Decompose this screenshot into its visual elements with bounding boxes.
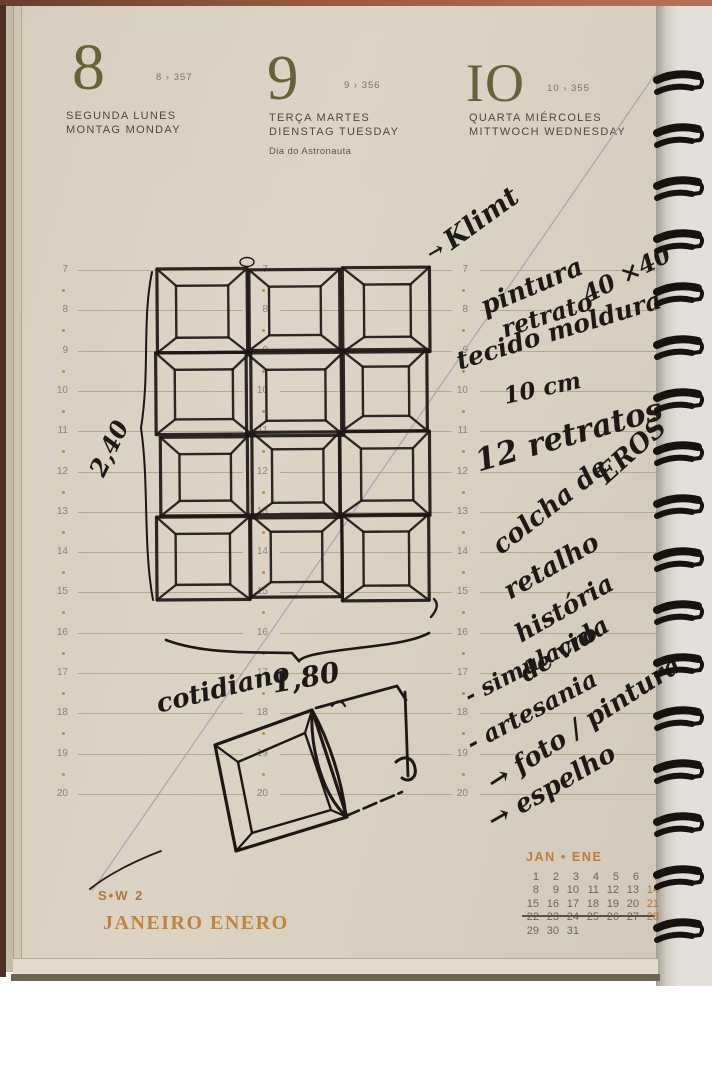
day-info-10: 10 › 355	[547, 83, 590, 94]
hour-line	[280, 754, 452, 755]
half-hour-dot	[462, 652, 465, 655]
hour-number: 14	[46, 546, 68, 557]
mini-calendar-grid: 1234567891011121314151617181920212223242…	[522, 869, 662, 936]
hour-line	[78, 794, 243, 795]
hour-number: 10	[246, 385, 268, 396]
hour-line	[78, 512, 243, 513]
hour-number: 7	[446, 264, 468, 275]
calendar-day: 30	[542, 925, 562, 938]
hour-number: 16	[246, 627, 268, 638]
calendar-row: 15161718192021	[522, 896, 662, 909]
page-stack-edge-left-2	[14, 6, 22, 964]
book-bottom-edge	[11, 974, 660, 981]
hour-number: 19	[446, 748, 468, 759]
hour-line	[78, 351, 243, 352]
calendar-row: 1234567	[522, 869, 662, 882]
hour-number: 9	[46, 345, 68, 356]
page-stack-edge-bottom	[13, 958, 658, 975]
half-hour-dot	[62, 289, 65, 292]
book-top-edge	[0, 0, 712, 6]
hour-number: 7	[46, 264, 68, 275]
hour-number: 20	[246, 788, 268, 799]
half-hour-dot	[62, 531, 65, 534]
hour-number: 12	[46, 466, 68, 477]
hour-number: 13	[446, 506, 468, 517]
half-hour-dot	[62, 370, 65, 373]
hour-line	[480, 512, 656, 513]
half-hour-dot	[262, 652, 265, 655]
mini-calendar: JAN • ENE 123456789101112131415161718192…	[522, 850, 662, 936]
hour-number: 12	[446, 466, 468, 477]
scanner-background-right	[656, 6, 712, 986]
half-hour-dot	[62, 692, 65, 695]
day-names-9: TERÇA MARTES DIENSTAG TUESDAY	[269, 112, 399, 139]
half-hour-dot	[262, 289, 265, 292]
hour-line	[78, 310, 243, 311]
day-names-8: SEGUNDA LUNES MONTAG MONDAY	[66, 110, 181, 137]
half-hour-dot	[462, 491, 465, 494]
hour-line	[78, 270, 243, 271]
hour-number: 9	[246, 345, 268, 356]
calendar-week-underline	[522, 915, 654, 917]
day-number-9: 9	[267, 42, 299, 115]
day-note-astronaut: Dia do Astronauta	[269, 146, 351, 157]
half-hour-dot	[462, 289, 465, 292]
hour-number: 15	[446, 586, 468, 597]
hour-number: 18	[246, 707, 268, 718]
half-hour-dot	[262, 491, 265, 494]
half-hour-dot	[62, 652, 65, 655]
day-number-8: 8	[72, 30, 105, 106]
half-hour-dot	[262, 531, 265, 534]
hour-line	[280, 512, 452, 513]
hour-number: 17	[446, 667, 468, 678]
diary-page-scan: 8 8 › 357 SEGUNDA LUNES MONTAG MONDAY 9 …	[0, 0, 712, 1086]
hour-number: 11	[46, 425, 68, 436]
half-hour-dot	[462, 773, 465, 776]
hour-number: 15	[46, 586, 68, 597]
hour-number: 20	[446, 788, 468, 799]
mini-calendar-title: JAN • ENE	[526, 850, 662, 864]
half-hour-dot	[462, 531, 465, 534]
hour-number: 14	[246, 546, 268, 557]
half-hour-dot	[462, 410, 465, 413]
hour-number: 8	[246, 304, 268, 315]
hour-line	[280, 351, 452, 352]
hour-number: 12	[246, 466, 268, 477]
page-stack-edge-left-1	[6, 6, 14, 972]
hour-number: 13	[46, 506, 68, 517]
hour-line	[280, 713, 452, 714]
hour-number: 20	[46, 788, 68, 799]
hour-number: 10	[446, 385, 468, 396]
hour-number: 18	[46, 707, 68, 718]
day-info-9: 9 › 356	[344, 80, 381, 91]
hour-number: 13	[246, 506, 268, 517]
hour-number: 15	[246, 586, 268, 597]
hour-line	[78, 633, 243, 634]
hour-line	[280, 270, 452, 271]
half-hour-dot	[262, 370, 265, 373]
hour-number: 16	[446, 627, 468, 638]
hour-number: 14	[446, 546, 468, 557]
hour-number: 10	[46, 385, 68, 396]
half-hour-dot	[262, 773, 265, 776]
hour-line	[78, 391, 243, 392]
hour-number: 19	[246, 748, 268, 759]
hour-line	[280, 472, 452, 473]
calendar-row: 891011121314	[522, 882, 662, 895]
hour-number: 11	[246, 425, 268, 436]
calendar-day: 29	[522, 925, 542, 938]
calendar-row: 293031	[522, 923, 662, 936]
hour-number: 16	[46, 627, 68, 638]
hour-line	[280, 592, 452, 593]
day-names-10: QUARTA MIÉRCOLES MITTWOCH WEDNESDAY	[469, 112, 626, 139]
calendar-day: 31	[562, 925, 582, 938]
hour-line	[280, 431, 452, 432]
hour-number: 17	[46, 667, 68, 678]
hour-line	[78, 592, 243, 593]
hour-number: 8	[446, 304, 468, 315]
hour-line	[78, 552, 243, 553]
half-hour-dot	[262, 410, 265, 413]
hour-number: 18	[446, 707, 468, 718]
hour-number: 19	[46, 748, 68, 759]
hour-line	[280, 391, 452, 392]
half-hour-dot	[62, 773, 65, 776]
hour-number: 11	[446, 425, 468, 436]
half-hour-dot	[62, 410, 65, 413]
month-label: JANEIRO ENERO	[103, 912, 289, 935]
hour-line	[78, 754, 243, 755]
hour-line	[280, 633, 452, 634]
hour-number: 7	[246, 264, 268, 275]
hour-line	[280, 794, 452, 795]
hour-line	[280, 310, 452, 311]
half-hour-dot	[62, 491, 65, 494]
hour-line	[280, 552, 452, 553]
hour-number: 8	[46, 304, 68, 315]
hour-line	[480, 754, 656, 755]
week-number-label: S•W 2	[98, 888, 144, 903]
day-info-8: 8 › 357	[156, 72, 193, 83]
day-number-10: IO	[466, 52, 525, 114]
